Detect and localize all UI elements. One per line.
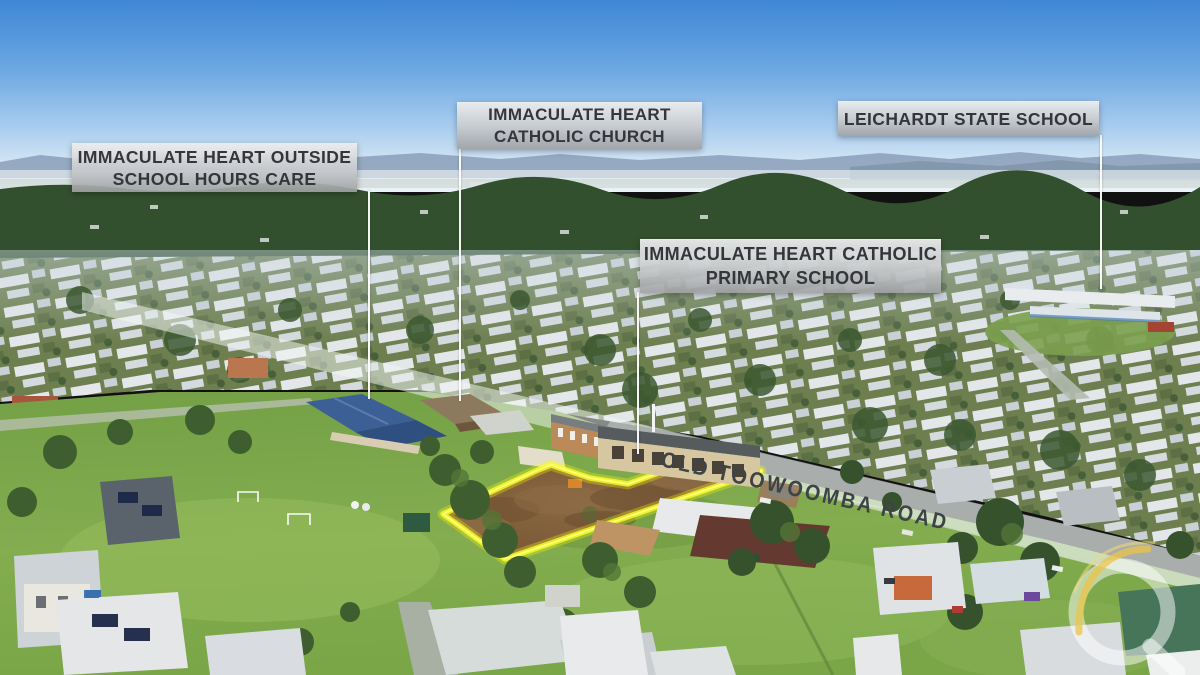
aerial-property-photo: OLD TOOWOOMBA ROAD IMMACULATE HEART OUTS… bbox=[0, 0, 1200, 675]
label-line: PRIMARY SCHOOL bbox=[706, 267, 876, 290]
label-catholic-primary-school: IMMACULATE HEART CATHOLIC PRIMARY SCHOOL bbox=[640, 239, 941, 293]
leader-line-state-school bbox=[1100, 135, 1102, 289]
leader-line-catholic-primary-school bbox=[637, 292, 639, 454]
leader-line-outside-school-hours-care bbox=[368, 191, 370, 399]
label-line: SCHOOL HOURS CARE bbox=[113, 168, 317, 190]
label-line: IMMACULATE HEART OUTSIDE bbox=[78, 146, 352, 168]
label-line: IMMACULATE HEART CATHOLIC bbox=[644, 243, 937, 266]
label-outside-school-hours-care: IMMACULATE HEART OUTSIDE SCHOOL HOURS CA… bbox=[72, 143, 357, 192]
leichardt-school-buildings bbox=[985, 288, 1175, 356]
label-line: IMMACULATE HEART bbox=[488, 104, 671, 126]
label-catholic-church: IMMACULATE HEART CATHOLIC CHURCH bbox=[457, 102, 702, 149]
label-state-school: LEICHARDT STATE SCHOOL bbox=[838, 101, 1099, 136]
leader-line-catholic-church bbox=[459, 148, 461, 401]
label-line: LEICHARDT STATE SCHOOL bbox=[844, 108, 1093, 130]
label-line: CATHOLIC CHURCH bbox=[494, 126, 665, 148]
